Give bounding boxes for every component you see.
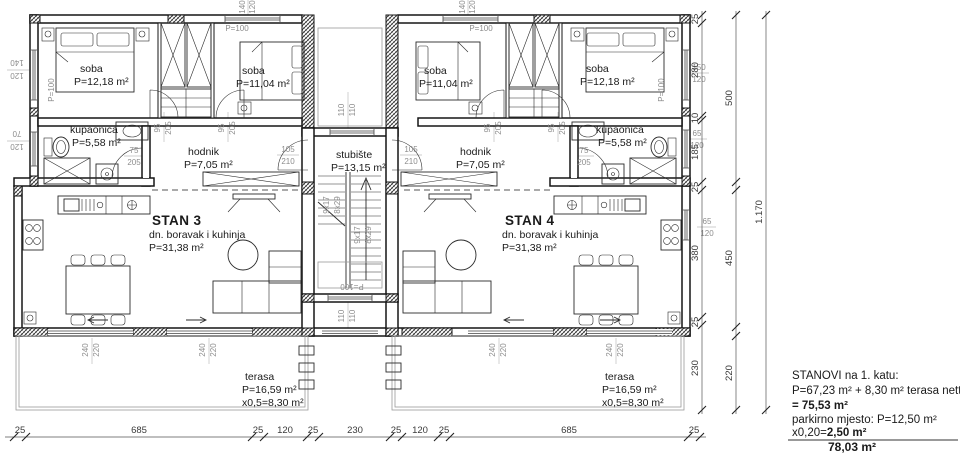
- parapet-label: P=100: [47, 78, 56, 102]
- dimension-chain-bottom: 25 685 25 120 25 230 25 120 25 685 25: [5, 425, 706, 441]
- stair-door-label: P=100: [340, 282, 364, 291]
- dim-right-4: 25: [690, 182, 701, 193]
- legend-line1: STANOVI na 1. katu:: [792, 370, 899, 382]
- coffee-table-left: [228, 240, 258, 270]
- window-height-label: 220: [92, 343, 101, 357]
- door-width-label: 95: [153, 123, 162, 132]
- room-area-soba-r2: P=12,18 m²: [580, 76, 635, 88]
- door-width-label: 75: [580, 146, 589, 155]
- apartment-desc-stan3: dn. boravak i kuhinja: [149, 229, 245, 241]
- window-width-label: 140: [238, 0, 247, 14]
- coffee-table-right: [446, 240, 476, 270]
- window-width-label: 140: [458, 0, 467, 14]
- room-label-soba-r1: soba: [424, 65, 447, 77]
- door-width-label: 95: [483, 123, 492, 132]
- window-width-label: 240: [198, 343, 207, 357]
- dim-bottom-6: 25: [391, 425, 402, 436]
- dining-table-right: [574, 255, 638, 325]
- window-height-label: 120: [468, 0, 477, 14]
- window-width-label: 65: [693, 129, 702, 138]
- dimension-total-right: 1.170: [754, 11, 770, 414]
- stair-rise-label: 8x29: [333, 196, 342, 214]
- window-width-label: 110: [337, 103, 346, 116]
- apartment-label-stan4: STAN 4: [505, 213, 554, 228]
- room-label-soba-r2: soba: [586, 63, 609, 75]
- door-width-label: 105: [404, 145, 418, 154]
- window-width-label: 110: [337, 309, 346, 322]
- window-height-label: 120: [10, 142, 24, 151]
- dim-right-0: 25: [690, 14, 701, 25]
- kitchen-left: [23, 196, 150, 250]
- door-width-label: 105: [281, 145, 295, 154]
- stair-rise-label: 8x29: [364, 226, 373, 244]
- door-height-label: 205: [494, 121, 503, 135]
- dim-right-outer-0: 500: [724, 90, 735, 106]
- legend-line2: P=67,23 m² + 8,30 m² terasa netto: [792, 385, 960, 397]
- dim-bottom-10: 25: [689, 425, 700, 436]
- room-area-kupaonica-l: P=5,58 m²: [72, 137, 121, 149]
- door-width-label: 95: [547, 123, 556, 132]
- terrace-area-right: P=16,59 m²: [602, 384, 657, 396]
- dim-bottom-9: 685: [561, 425, 577, 436]
- tv-unit-right: [401, 172, 497, 212]
- dim-right-6: 25: [690, 317, 701, 328]
- parapet-label: P=100: [469, 24, 493, 33]
- door-height-label: 210: [404, 157, 418, 166]
- dim-bottom-2: 25: [253, 425, 264, 436]
- window-height-label: 120: [248, 0, 257, 14]
- room-label-kupaonica-l: kupaonica: [70, 124, 118, 136]
- room-label-soba-l1: soba: [80, 63, 103, 75]
- door-width-label: 95: [217, 123, 226, 132]
- dimension-chain-right-outer: 500 450 220: [724, 11, 740, 414]
- dim-right-1: 280: [690, 62, 701, 78]
- room-area-stubiste: P=13,15 m²: [331, 162, 386, 174]
- apartment-area-stan4: P=31,38 m²: [502, 242, 557, 254]
- room-label-hodnik-l: hodnik: [188, 146, 220, 158]
- window-width-label: 70: [12, 129, 21, 138]
- room-area-hodnik-r: P=7,05 m²: [456, 159, 505, 171]
- dim-right-3: 185: [690, 144, 701, 160]
- door-height-label: 205: [164, 121, 173, 135]
- apartment-area-stan3: P=31,38 m²: [149, 242, 204, 254]
- door-height-label: 205: [228, 121, 237, 135]
- door-width-label: 75: [130, 146, 139, 155]
- kitchen-right: [554, 196, 681, 250]
- window-height-label: 110: [348, 103, 357, 116]
- window-height-label: 110: [348, 309, 357, 322]
- dim-right-2: 10: [690, 113, 701, 124]
- dim-bottom-4: 25: [308, 425, 319, 436]
- terrace-label-right: terasa: [605, 371, 634, 383]
- dim-bottom-0: 25: [15, 425, 26, 436]
- window-height-label: 120: [700, 229, 714, 238]
- legend-total: 78,03 m²: [828, 440, 876, 453]
- legend-line4: parkirno mjesto: P=12,50 m²: [792, 414, 937, 426]
- stair-run-label: 9x17: [353, 226, 362, 244]
- legend-line3: = 75,53 m²: [792, 400, 848, 412]
- floor-plan-svg: soba P=12,18 m² soba P=11,04 m² kupaonic…: [0, 0, 960, 453]
- window-height-label: 220: [209, 343, 218, 357]
- door-height-label: 205: [127, 158, 141, 167]
- room-area-soba-l1: P=12,18 m²: [74, 76, 129, 88]
- apartment-label-stan3: STAN 3: [152, 213, 201, 228]
- legend-line5: x0,20=2,50 m²: [792, 427, 867, 439]
- dim-total: 1.170: [754, 200, 765, 224]
- legend-line5a: x0,20=: [792, 427, 827, 439]
- stair-run-label: 9x17: [322, 196, 331, 214]
- terrace-area-left: P=16,59 m²: [242, 384, 297, 396]
- door-height-label: 210: [281, 157, 295, 166]
- dim-right-7: 230: [690, 360, 701, 376]
- parapet-label: P=100: [225, 24, 249, 33]
- legend-line5b: 2,50 m²: [827, 427, 867, 439]
- window-width-label: 240: [605, 343, 614, 357]
- dim-right-outer-2: 220: [724, 365, 735, 381]
- dim-bottom-1: 685: [131, 425, 147, 436]
- floor-drain-right: [668, 312, 680, 324]
- apartment-desc-stan4: dn. boravak i kuhinja: [502, 229, 598, 241]
- room-label-stubiste: stubište: [336, 149, 372, 161]
- parapet-label: P=100: [657, 78, 666, 102]
- terrace-half-right: x0,5=8,30 m²: [602, 397, 664, 409]
- room-area-soba-r1: P=11,04 m²: [419, 78, 473, 90]
- legend-block: STANOVI na 1. katu: P=67,23 m² + 8,30 m²…: [788, 370, 960, 453]
- wardrobe-right: [509, 23, 559, 117]
- dining-table-left: [66, 255, 130, 325]
- room-label-kupaonica-r: kupaonica: [596, 124, 644, 136]
- dim-bottom-7: 120: [412, 425, 428, 436]
- tv-unit-left: [203, 172, 299, 212]
- dim-bottom-5: 230: [347, 425, 363, 436]
- window-height-label: 120: [10, 71, 24, 80]
- terrace-label-left: terasa: [245, 371, 274, 383]
- floor-drain-left: [24, 312, 36, 324]
- floor-plan-page: soba P=12,18 m² soba P=11,04 m² kupaonic…: [0, 0, 960, 453]
- room-area-kupaonica-r: P=5,58 m²: [598, 137, 647, 149]
- dim-bottom-8: 25: [439, 425, 450, 436]
- dim-bottom-3: 120: [277, 425, 293, 436]
- room-area-hodnik-l: P=7,05 m²: [184, 159, 233, 171]
- window-height-label: 220: [499, 343, 508, 357]
- window-width-label: 65: [703, 217, 712, 226]
- window-width-label: 240: [81, 343, 90, 357]
- room-area-soba-l2: P=11,04 m²: [236, 78, 290, 90]
- dim-right-5: 380: [690, 245, 701, 261]
- window-width-label: 140: [10, 58, 24, 67]
- door-height-label: 205: [577, 158, 591, 167]
- terrace-half-left: x0,5=8,30 m²: [242, 397, 304, 409]
- window-width-label: 240: [488, 343, 497, 357]
- room-label-hodnik-r: hodnik: [460, 146, 492, 158]
- window-height-label: 220: [616, 343, 625, 357]
- wardrobe-left: [161, 23, 211, 117]
- door-height-label: 205: [558, 121, 567, 135]
- dim-right-outer-1: 450: [724, 250, 735, 266]
- room-label-soba-l2: soba: [242, 65, 265, 77]
